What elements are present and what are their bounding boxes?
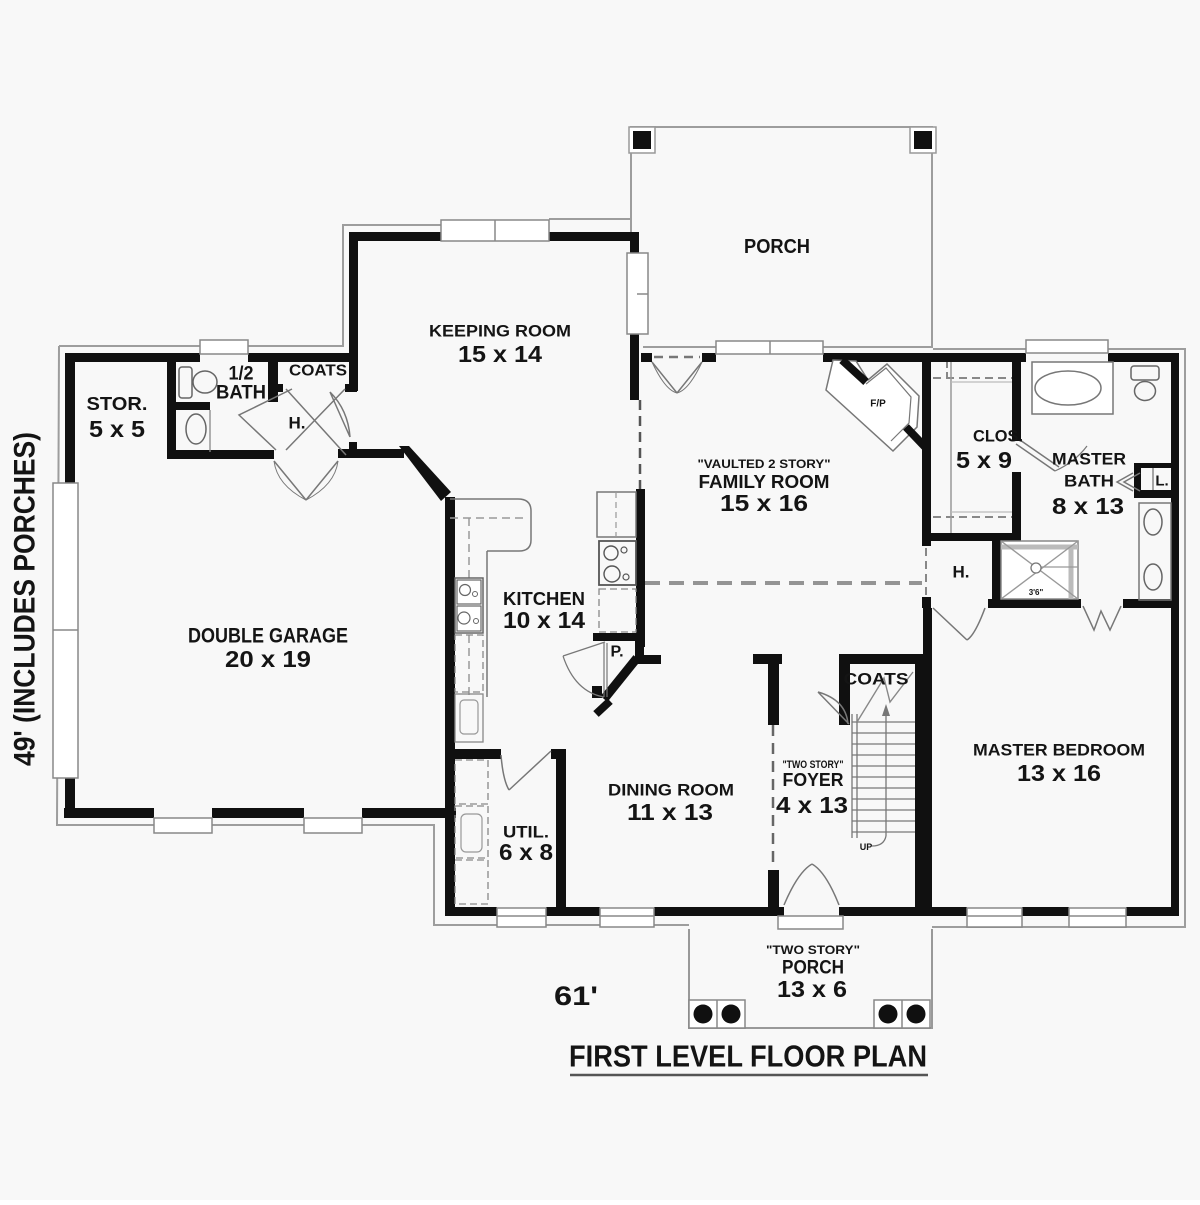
svg-text:KEEPING ROOM: KEEPING ROOM [429, 322, 571, 341]
svg-text:3'6": 3'6" [1029, 588, 1044, 597]
svg-text:61': 61' [554, 981, 598, 1011]
svg-text:1/2: 1/2 [229, 364, 254, 385]
svg-text:COATS: COATS [289, 363, 347, 380]
svg-text:49' (INCLUDES PORCHES): 49' (INCLUDES PORCHES) [9, 432, 42, 766]
svg-text:13 x 6: 13 x 6 [777, 976, 847, 1002]
svg-text:10 x 14: 10 x 14 [503, 607, 585, 633]
svg-text:FAMILY ROOM: FAMILY ROOM [699, 472, 830, 492]
svg-text:UP: UP [860, 842, 873, 852]
svg-text:FIRST LEVEL FLOOR PLAN: FIRST LEVEL FLOOR PLAN [569, 1039, 927, 1074]
svg-text:"TWO STORY": "TWO STORY" [766, 943, 860, 957]
svg-text:5 x 5: 5 x 5 [89, 416, 145, 442]
svg-text:11 x 13: 11 x 13 [627, 799, 713, 825]
svg-text:L.: L. [1155, 473, 1168, 490]
svg-text:H.: H. [289, 414, 306, 433]
svg-text:4 x 13: 4 x 13 [776, 792, 848, 818]
svg-text:MASTER: MASTER [1052, 450, 1126, 469]
svg-text:8 x 13: 8 x 13 [1052, 493, 1124, 519]
svg-text:6 x 8: 6 x 8 [499, 839, 553, 865]
svg-text:KITCHEN: KITCHEN [503, 589, 585, 609]
svg-text:5 x 9: 5 x 9 [956, 447, 1012, 473]
svg-text:DINING ROOM: DINING ROOM [608, 781, 734, 800]
svg-text:H.: H. [953, 563, 970, 582]
svg-text:"VAULTED 2 STORY": "VAULTED 2 STORY" [698, 457, 831, 471]
svg-text:PORCH: PORCH [744, 236, 810, 258]
svg-text:DOUBLE GARAGE: DOUBLE GARAGE [188, 625, 348, 648]
svg-text:CLOS.: CLOS. [973, 427, 1023, 446]
svg-text:FOYER: FOYER [783, 770, 844, 790]
svg-text:COATS: COATS [844, 670, 909, 689]
svg-text:BATH: BATH [1064, 472, 1114, 491]
svg-text:15 x 14: 15 x 14 [458, 341, 542, 367]
svg-text:15 x 16: 15 x 16 [720, 490, 808, 516]
svg-text:MASTER BEDROOM: MASTER BEDROOM [973, 741, 1145, 760]
svg-text:P.: P. [610, 644, 623, 661]
svg-text:F/P: F/P [870, 399, 886, 410]
svg-text:20 x 19: 20 x 19 [225, 646, 311, 672]
svg-text:STOR.: STOR. [87, 394, 148, 414]
svg-text:BATH: BATH [216, 383, 266, 404]
svg-text:13 x 16: 13 x 16 [1017, 760, 1101, 786]
